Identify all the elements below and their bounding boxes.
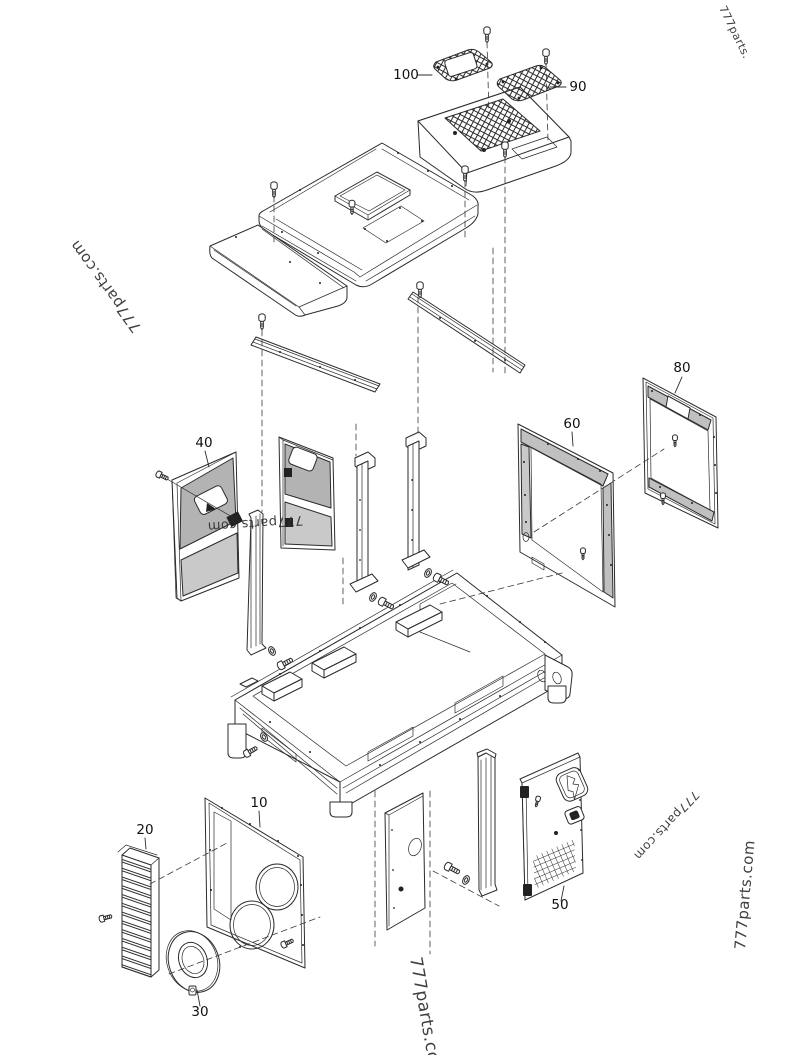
screw-icon (484, 27, 490, 43)
watermark-left: 777parts.com (66, 237, 145, 337)
callout-label-90: 90 (569, 79, 586, 95)
screw-icon (271, 182, 277, 198)
diagram-canvas: 100 90 80 60 40 10 20 50 30 777parts. 77… (0, 0, 800, 1055)
mounting-rail-right (408, 292, 525, 373)
callout-label-60: 60 (563, 416, 580, 432)
washer-icon (368, 592, 378, 603)
part-30-ring (158, 923, 228, 999)
watermark-right: 777parts.com (631, 788, 702, 863)
watermark-bottom-center: 777parts.com (405, 955, 446, 1055)
callout-label-50: 50 (551, 897, 568, 913)
bolt-icon (155, 470, 169, 481)
door-second (279, 437, 335, 550)
washer-icon (267, 646, 277, 657)
exploded-diagram: 100 90 80 60 40 10 20 50 30 777parts. 77… (0, 0, 800, 1055)
part-100-cover (434, 49, 493, 80)
bolt-icon (377, 596, 395, 611)
callout-label-80: 80 (673, 360, 690, 376)
watermark-top-right: 777parts. (716, 4, 753, 61)
part-20-louver (118, 845, 159, 977)
narrow-side-panel (385, 793, 425, 930)
callout-label-30: 30 (191, 1004, 208, 1020)
callout-label-20: 20 (136, 822, 153, 838)
hinge-rail-lower (477, 749, 497, 896)
corner-post-a (350, 452, 378, 592)
bolt-icon (98, 913, 112, 923)
mounting-rail-left (251, 337, 380, 392)
callout-label-100: 100 (393, 67, 419, 83)
callout-label-10: 10 (250, 795, 267, 811)
screw-icon (259, 314, 265, 330)
bolt-icon (443, 861, 461, 876)
part-50-door (520, 753, 590, 900)
washer-icon (461, 875, 471, 886)
screw-icon (543, 49, 549, 65)
part-60-door-frame (518, 424, 615, 607)
washer-icon (423, 568, 433, 579)
hinge-rail-upper (247, 510, 266, 655)
part-80-door-frame (643, 378, 718, 528)
watermark-bottom-right: 777parts.com (731, 839, 759, 950)
callout-label-40: 40 (195, 435, 212, 451)
corner-post-b (402, 432, 430, 570)
